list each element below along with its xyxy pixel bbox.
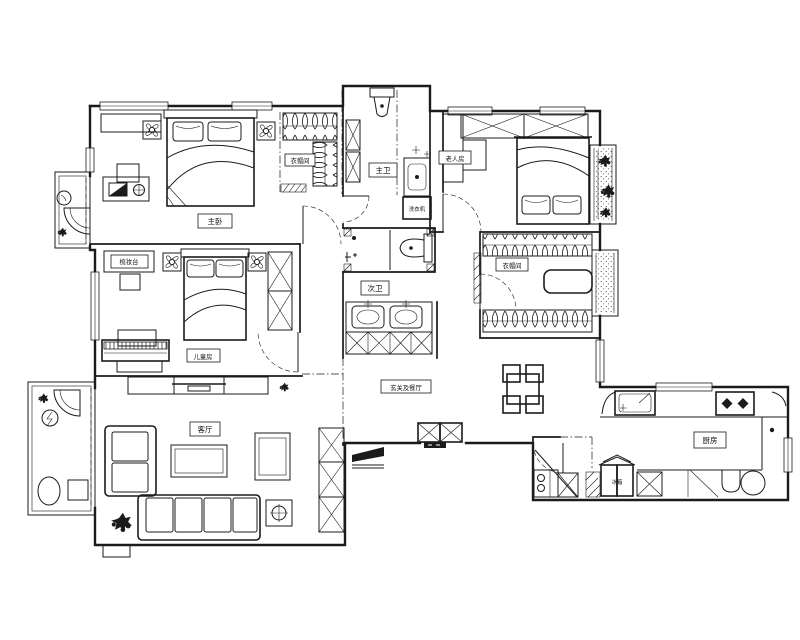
appliance-label: 洗衣机 xyxy=(409,205,426,213)
stove-icon xyxy=(716,392,754,415)
window-kids-left xyxy=(91,272,99,340)
room-label: 衣帽间 xyxy=(291,156,310,165)
master-door xyxy=(303,206,341,244)
window-master-top-2 xyxy=(232,102,272,110)
room-label: 儿童房 xyxy=(194,352,213,361)
room-label: 主卧 xyxy=(208,216,223,226)
balcony-master xyxy=(55,172,90,248)
room-label: 客厅 xyxy=(198,424,213,434)
kids-room: 梳妆台 儿童房 xyxy=(102,249,298,372)
ceiling-fan-icon xyxy=(257,122,275,140)
hatch-strip xyxy=(281,184,306,192)
fridge-icon: 冰箱 xyxy=(599,455,635,496)
sink-icon xyxy=(390,300,422,328)
master-bath: 洗衣机 主卫 xyxy=(343,88,431,222)
toilet-icon xyxy=(370,88,394,117)
room-label: 玄关及餐厅 xyxy=(390,383,421,392)
sofa-icon xyxy=(138,495,260,540)
cloakroom: 衣帽间 xyxy=(474,234,592,332)
cloakroom-door xyxy=(480,274,516,310)
storage-cabinet-icon xyxy=(319,428,344,532)
ceiling-fan-icon xyxy=(143,121,161,139)
plant-icon xyxy=(111,513,132,532)
room-label: 主卫 xyxy=(376,165,391,175)
vanity-cabinets xyxy=(346,332,432,354)
bed-icon xyxy=(181,249,249,340)
appliance-label: 冰箱 xyxy=(612,478,623,486)
bath-door xyxy=(343,196,369,222)
ceiling-fan-icon xyxy=(163,253,181,271)
guest-bath: 次卫 xyxy=(344,229,434,295)
armchair-icon xyxy=(255,433,290,480)
desk-icon xyxy=(103,164,149,201)
balcony-living xyxy=(28,382,95,515)
ceiling-lamp-icon xyxy=(266,500,292,526)
room-label: 衣帽间 xyxy=(503,261,522,270)
bed-icon xyxy=(514,137,592,224)
entry-threshold-icon xyxy=(424,442,446,448)
kitchen-sink-icon xyxy=(615,391,655,415)
dresser-icon: 梳妆台 xyxy=(104,251,154,290)
plant-icon xyxy=(279,383,289,392)
foyer-dining: 玄关及餐厅 xyxy=(352,365,563,473)
hatch-block xyxy=(586,472,600,497)
dining-set-icon xyxy=(503,365,543,413)
vanity-area xyxy=(346,300,432,354)
toilet-icon xyxy=(400,234,432,262)
elder-door xyxy=(443,194,481,232)
island-bench-icon xyxy=(544,270,592,293)
pantry-door xyxy=(533,443,563,473)
tv-cabinet-icon xyxy=(128,377,268,394)
window-master-left xyxy=(86,148,94,172)
window-master-top xyxy=(100,102,168,110)
loveseat-icon xyxy=(105,426,156,496)
entry-step-icon xyxy=(352,447,384,468)
bay-window-plants xyxy=(590,145,616,224)
floor-plan-canvas: 主卧 衣帽间 洗衣机 主卫 xyxy=(0,0,800,640)
double-bed-icon xyxy=(164,110,257,206)
tall-cabinet-icon xyxy=(443,114,463,182)
furniture-label: 梳妆台 xyxy=(120,257,139,266)
window-dining-right xyxy=(596,340,604,382)
round-basin-icon xyxy=(741,471,765,495)
room-label: 厨房 xyxy=(703,435,718,445)
sink-icon xyxy=(404,146,430,196)
bottom-notch xyxy=(103,545,130,557)
bay-window-seat xyxy=(592,250,618,316)
elder-room: 老人房 xyxy=(439,114,592,232)
cabinet-icon xyxy=(101,114,161,132)
mop-basin-icon xyxy=(38,477,60,505)
master-closet: 衣帽间 xyxy=(281,113,337,192)
kids-door xyxy=(258,332,298,372)
corner-pads xyxy=(344,229,434,271)
room-label: 次卫 xyxy=(368,283,383,293)
room-label: 老人房 xyxy=(446,154,465,163)
sink-icon xyxy=(352,300,384,328)
window-kitchen-right xyxy=(784,438,792,472)
pantry xyxy=(534,450,600,497)
coffee-table-icon xyxy=(171,445,227,477)
window-kitchen-top xyxy=(656,383,712,391)
piano-icon xyxy=(102,340,169,372)
shoe-cabinet-icon xyxy=(418,423,462,448)
living-room: 客厅 xyxy=(105,377,344,540)
kitchen: 冰箱 厨房 xyxy=(599,391,788,497)
washing-machine-icon: 洗衣机 xyxy=(403,197,431,219)
ceiling-fan-icon xyxy=(248,253,266,271)
prep-sink-icon xyxy=(722,470,740,492)
wardrobe-icon xyxy=(268,252,292,330)
